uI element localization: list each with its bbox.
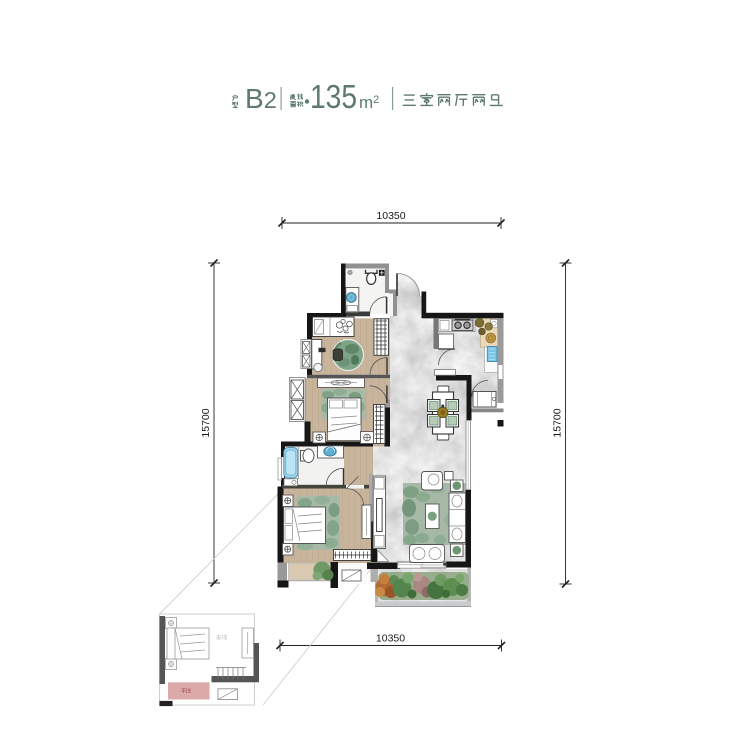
svg-text:15700: 15700	[200, 408, 212, 437]
svg-text:m2: m2	[359, 93, 379, 112]
svg-text:15700: 15700	[552, 408, 564, 437]
svg-text:135: 135	[310, 78, 357, 115]
svg-text:10350: 10350	[376, 633, 405, 645]
svg-text:B2: B2	[245, 83, 277, 114]
svg-text:10350: 10350	[376, 210, 405, 222]
